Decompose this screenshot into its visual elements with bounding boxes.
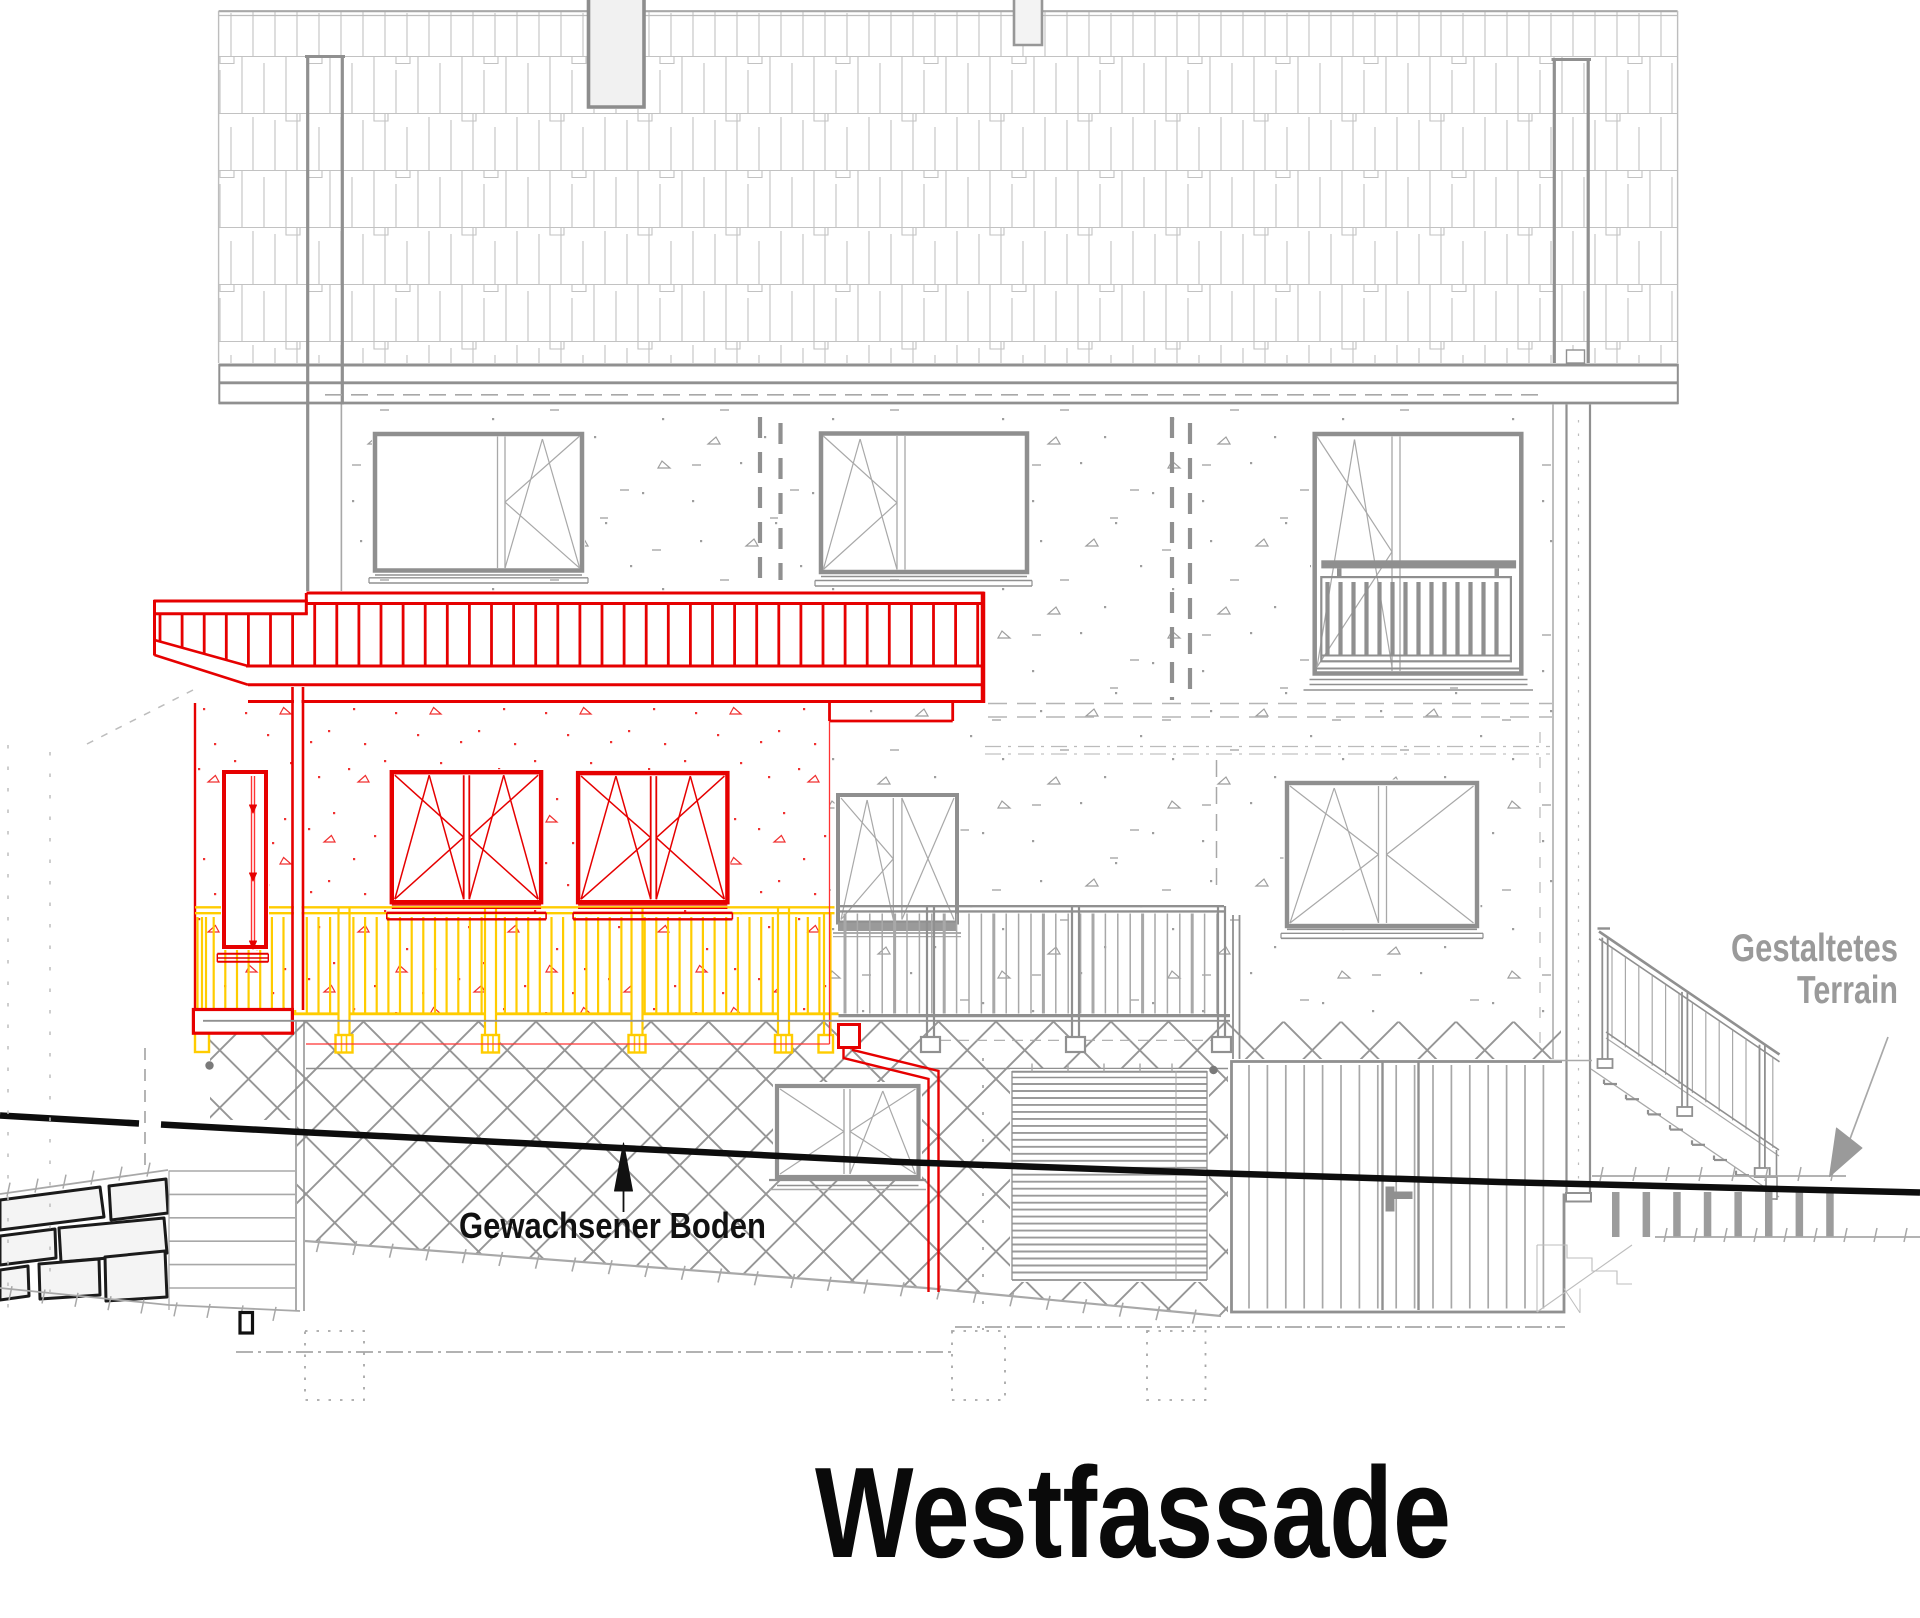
svg-text:Gestaltetes: Gestaltetes bbox=[1731, 927, 1898, 970]
svg-text:Westfassade: Westfassade bbox=[815, 1441, 1451, 1585]
svg-text:Gewachsener Boden: Gewachsener Boden bbox=[459, 1205, 766, 1246]
svg-text:Terrain: Terrain bbox=[1797, 969, 1898, 1012]
